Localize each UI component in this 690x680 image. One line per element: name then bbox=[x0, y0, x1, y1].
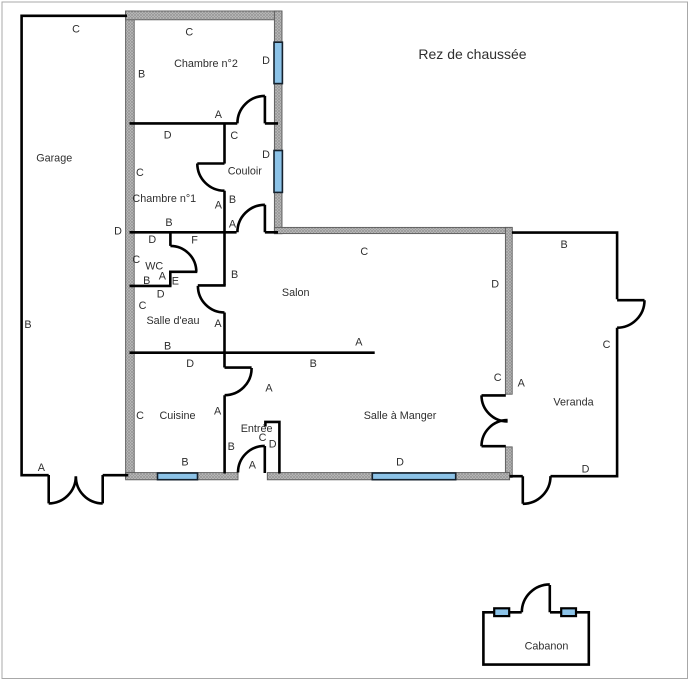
svg-text:Salle d'eau: Salle d'eau bbox=[146, 315, 199, 327]
svg-text:B: B bbox=[228, 441, 235, 453]
svg-text:C: C bbox=[603, 339, 611, 351]
svg-text:A: A bbox=[159, 270, 167, 282]
svg-text:C: C bbox=[132, 254, 140, 266]
svg-text:B: B bbox=[560, 239, 567, 251]
svg-text:B: B bbox=[138, 69, 145, 81]
svg-text:A: A bbox=[215, 109, 223, 121]
svg-text:A: A bbox=[38, 462, 46, 474]
svg-text:Salon: Salon bbox=[282, 287, 310, 299]
svg-text:C: C bbox=[494, 372, 502, 384]
svg-text:A: A bbox=[214, 406, 222, 418]
svg-text:Cabanon: Cabanon bbox=[525, 640, 569, 652]
svg-text:Cuisine: Cuisine bbox=[159, 410, 195, 422]
svg-text:C: C bbox=[139, 300, 147, 312]
svg-text:B: B bbox=[165, 217, 172, 229]
svg-text:B: B bbox=[164, 341, 171, 353]
svg-text:Couloir: Couloir bbox=[228, 166, 263, 178]
svg-text:C: C bbox=[72, 23, 80, 35]
svg-text:C: C bbox=[136, 167, 144, 179]
svg-text:A: A bbox=[249, 460, 257, 472]
svg-text:B: B bbox=[310, 358, 317, 370]
svg-text:Veranda: Veranda bbox=[553, 396, 593, 408]
svg-text:A: A bbox=[265, 382, 273, 394]
svg-text:D: D bbox=[491, 278, 499, 290]
svg-text:A: A bbox=[215, 200, 223, 212]
svg-text:D: D bbox=[262, 55, 270, 67]
svg-text:A: A bbox=[229, 219, 237, 231]
svg-text:Rez de chaussée: Rez de chaussée bbox=[418, 46, 526, 62]
svg-text:C: C bbox=[360, 246, 368, 258]
svg-text:B: B bbox=[181, 456, 188, 468]
svg-text:D: D bbox=[186, 358, 194, 370]
svg-text:D: D bbox=[396, 456, 404, 468]
svg-text:C: C bbox=[259, 432, 267, 444]
svg-text:D: D bbox=[148, 234, 156, 246]
svg-text:Garage: Garage bbox=[36, 152, 72, 164]
svg-text:B: B bbox=[143, 275, 150, 287]
svg-text:C: C bbox=[136, 410, 144, 422]
svg-text:D: D bbox=[582, 463, 590, 475]
svg-text:Entrée: Entrée bbox=[241, 423, 273, 435]
svg-text:D: D bbox=[269, 439, 277, 451]
svg-text:A: A bbox=[355, 337, 363, 349]
svg-text:E: E bbox=[172, 276, 179, 288]
svg-text:B: B bbox=[229, 194, 236, 206]
svg-text:D: D bbox=[164, 129, 172, 141]
svg-text:B: B bbox=[24, 319, 31, 331]
svg-text:Chambre n°1: Chambre n°1 bbox=[132, 193, 196, 205]
svg-text:C: C bbox=[230, 130, 238, 142]
svg-text:F: F bbox=[191, 235, 198, 247]
svg-text:A: A bbox=[214, 318, 222, 330]
svg-text:A: A bbox=[518, 378, 526, 390]
svg-text:D: D bbox=[114, 225, 122, 237]
svg-text:D: D bbox=[262, 149, 270, 161]
svg-text:B: B bbox=[231, 269, 238, 281]
svg-text:D: D bbox=[157, 289, 165, 301]
svg-text:Salle à Manger: Salle à Manger bbox=[364, 410, 437, 422]
svg-text:C: C bbox=[185, 27, 193, 39]
svg-text:Chambre n°2: Chambre n°2 bbox=[174, 58, 238, 70]
